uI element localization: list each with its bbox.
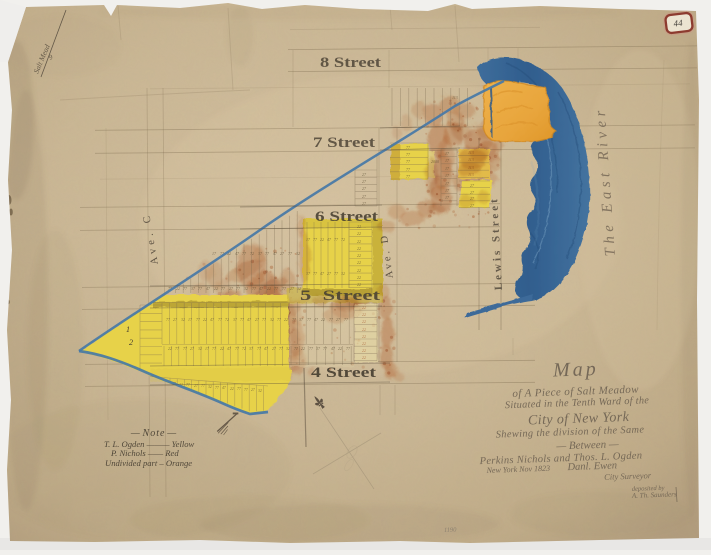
svg-text:22: 22: [301, 347, 305, 351]
svg-text:P. Nichols —— Red: P. Nichols —— Red: [110, 448, 179, 458]
svg-text:22: 22: [214, 286, 218, 291]
svg-text:113: 113: [452, 95, 458, 100]
svg-text:32: 32: [270, 318, 274, 322]
svg-text:22: 22: [220, 347, 224, 351]
svg-text:1190: 1190: [444, 527, 458, 534]
svg-text:2: 2: [129, 338, 133, 347]
svg-text:22: 22: [321, 318, 325, 322]
svg-text:22: 22: [357, 275, 361, 280]
svg-text:— Between —: — Between —: [555, 438, 619, 452]
svg-text:32: 32: [244, 286, 248, 291]
svg-text:22: 22: [362, 312, 366, 317]
svg-text:22: 22: [267, 286, 271, 291]
svg-text:22: 22: [357, 231, 361, 236]
svg-text:22: 22: [362, 348, 366, 353]
svg-text:72: 72: [242, 347, 246, 351]
svg-text:72: 72: [341, 237, 345, 242]
svg-text:22: 22: [362, 319, 366, 324]
svg-text:— Note —: — Note —: [130, 428, 177, 439]
svg-text:A. Th. Saunders: A. Th. Saunders: [631, 490, 677, 500]
svg-text:72: 72: [250, 251, 254, 256]
svg-text:22: 22: [362, 341, 366, 346]
svg-text:22: 22: [357, 268, 361, 273]
svg-text:22: 22: [284, 318, 288, 322]
svg-text:Undivided part – Orange: Undivided part – Orange: [105, 458, 192, 468]
svg-text:22: 22: [357, 246, 361, 251]
svg-text:7 Street: 7 Street: [313, 135, 375, 151]
svg-text:22: 22: [362, 327, 366, 332]
svg-text:Map: Map: [552, 358, 599, 382]
svg-text:22: 22: [203, 318, 207, 322]
svg-text:5 Street: 5 Street: [300, 288, 380, 304]
svg-text:32: 32: [208, 385, 212, 389]
svg-text:44: 44: [673, 18, 684, 29]
svg-text:32: 32: [341, 271, 345, 276]
svg-text:22: 22: [362, 355, 366, 360]
svg-text:32: 32: [198, 347, 202, 351]
svg-text:8 Street: 8 Street: [320, 55, 381, 71]
svg-text:32: 32: [181, 318, 185, 322]
svg-text:1: 1: [126, 325, 130, 334]
svg-text:22: 22: [357, 253, 361, 258]
svg-text:22: 22: [168, 347, 172, 351]
svg-text:6 Street: 6 Street: [315, 209, 378, 225]
svg-text:22: 22: [230, 387, 234, 391]
svg-text:4 Street: 4 Street: [311, 365, 376, 381]
svg-text:32: 32: [258, 389, 262, 393]
svg-text:22: 22: [320, 237, 324, 242]
svg-text:22: 22: [357, 260, 361, 265]
svg-text:22: 22: [362, 334, 366, 339]
svg-text:22: 22: [338, 347, 342, 351]
svg-text:22: 22: [357, 239, 361, 244]
svg-text:City Surveyor: City Surveyor: [604, 470, 652, 482]
svg-text:72: 72: [225, 318, 229, 322]
